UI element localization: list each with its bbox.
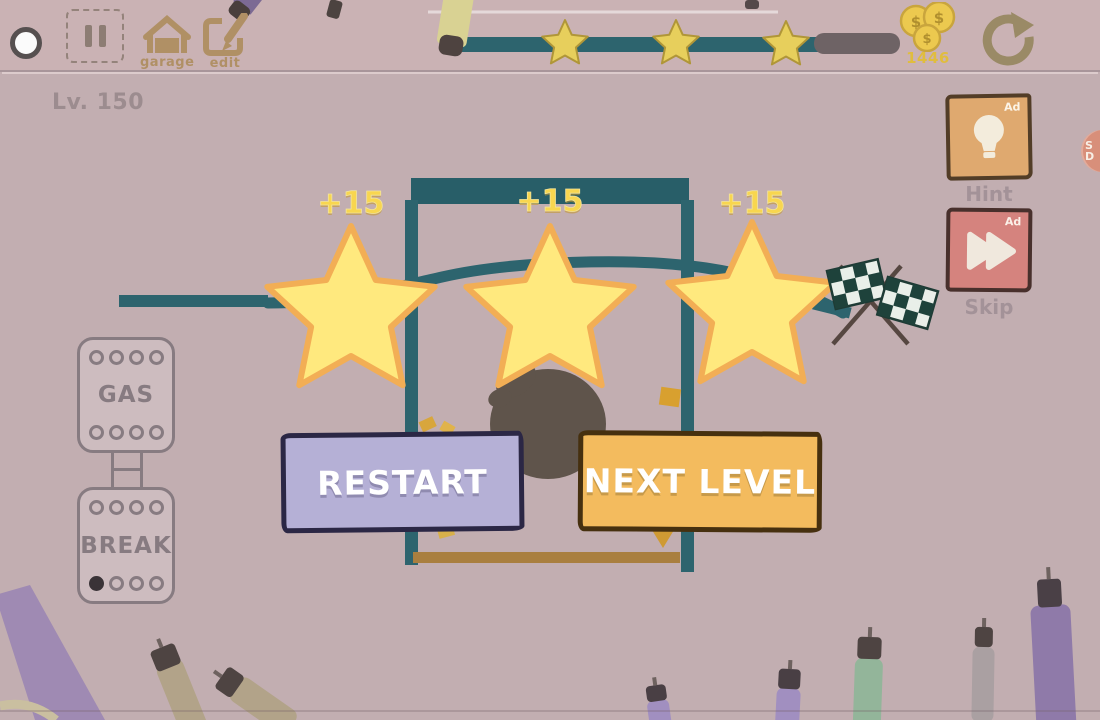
restart-button[interactable]: RESTART (280, 431, 524, 534)
star-reward-1: +15 (306, 186, 396, 221)
level-floor (413, 552, 680, 563)
garage-icon (141, 12, 193, 56)
svg-text:$: $ (922, 32, 931, 47)
break-pedal-button[interactable]: BREAK (77, 487, 175, 604)
ad-tag: Ad (1005, 215, 1022, 228)
star-reward-3: +15 (707, 186, 797, 221)
coins-icon: $ $ $ (896, 2, 960, 52)
garage-label: garage (140, 55, 194, 70)
next-level-button-label: NEXT LEVEL (584, 461, 817, 502)
gas-label: GAS (98, 382, 154, 408)
fast-forward-icon (960, 225, 1019, 276)
marker-icon (206, 660, 300, 720)
garage-button[interactable]: garage (140, 12, 194, 70)
break-label: BREAK (80, 533, 172, 559)
coin-counter: $ $ $ 1446 (894, 2, 962, 67)
restart-level-button[interactable] (980, 10, 1038, 70)
pedal-dots (89, 576, 164, 591)
track-end (812, 299, 852, 319)
marker-icon (1028, 566, 1076, 720)
marker-icon (643, 676, 674, 720)
level-label: Lv. 150 (52, 90, 144, 115)
big-star-1 (267, 226, 434, 385)
edit-button[interactable]: edit (200, 13, 250, 71)
star-reward-2: +15 (505, 184, 595, 219)
marker-icon (853, 627, 885, 720)
lightbulb-icon (967, 111, 1012, 164)
pedal-dots (89, 500, 164, 515)
skip-button[interactable]: Ad (946, 208, 1033, 293)
pause-icon (99, 25, 106, 47)
pedal-dots (89, 350, 164, 365)
big-star-2 (466, 226, 633, 385)
edit-label: edit (210, 56, 241, 71)
track-curve (268, 262, 843, 313)
skip-label: Skip (946, 295, 1032, 319)
coin-count: 1446 (906, 49, 950, 67)
sale-badge[interactable]: S D (1081, 130, 1100, 172)
pedal-connector (111, 451, 143, 489)
pause-button[interactable] (66, 9, 124, 63)
crayon-band-icon (0, 585, 105, 720)
marker-icon (145, 634, 210, 720)
gas-pedal-button[interactable]: GAS (77, 337, 175, 453)
hint-button[interactable]: Ad (945, 93, 1032, 180)
restart-icon (980, 10, 1038, 66)
record-indicator (10, 27, 42, 59)
restart-button-label: RESTART (317, 462, 488, 503)
hint-label: Hint (946, 182, 1032, 206)
marker-icon (774, 659, 802, 720)
edit-icon (200, 13, 250, 57)
big-star-3 (668, 222, 835, 381)
marker-icon (971, 618, 995, 720)
next-level-button[interactable]: NEXT LEVEL (578, 430, 823, 533)
ad-tag: Ad (1004, 100, 1021, 113)
svg-text:$: $ (934, 9, 944, 27)
pedal-dots (89, 425, 164, 440)
game-screen: garage edit $ $ $ 1446 Lv. 150 +15 +15 +… (0, 0, 1100, 720)
pause-icon (85, 25, 92, 47)
track-segment-left (119, 295, 268, 307)
finish-flags-icon (827, 259, 938, 344)
